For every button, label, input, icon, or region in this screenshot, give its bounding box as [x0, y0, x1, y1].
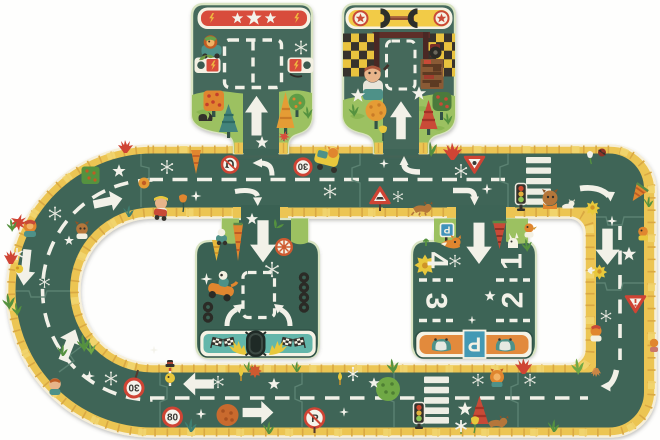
svg-text:P: P [468, 333, 481, 355]
svg-text:1: 1 [496, 253, 529, 270]
svg-text:3: 3 [420, 293, 453, 310]
svg-text:4: 4 [421, 252, 454, 269]
svg-text:2: 2 [497, 292, 530, 309]
svg-text:30: 30 [298, 161, 309, 172]
svg-text:P: P [443, 224, 450, 235]
svg-text:30: 30 [128, 381, 140, 392]
svg-text:80: 80 [167, 413, 179, 424]
